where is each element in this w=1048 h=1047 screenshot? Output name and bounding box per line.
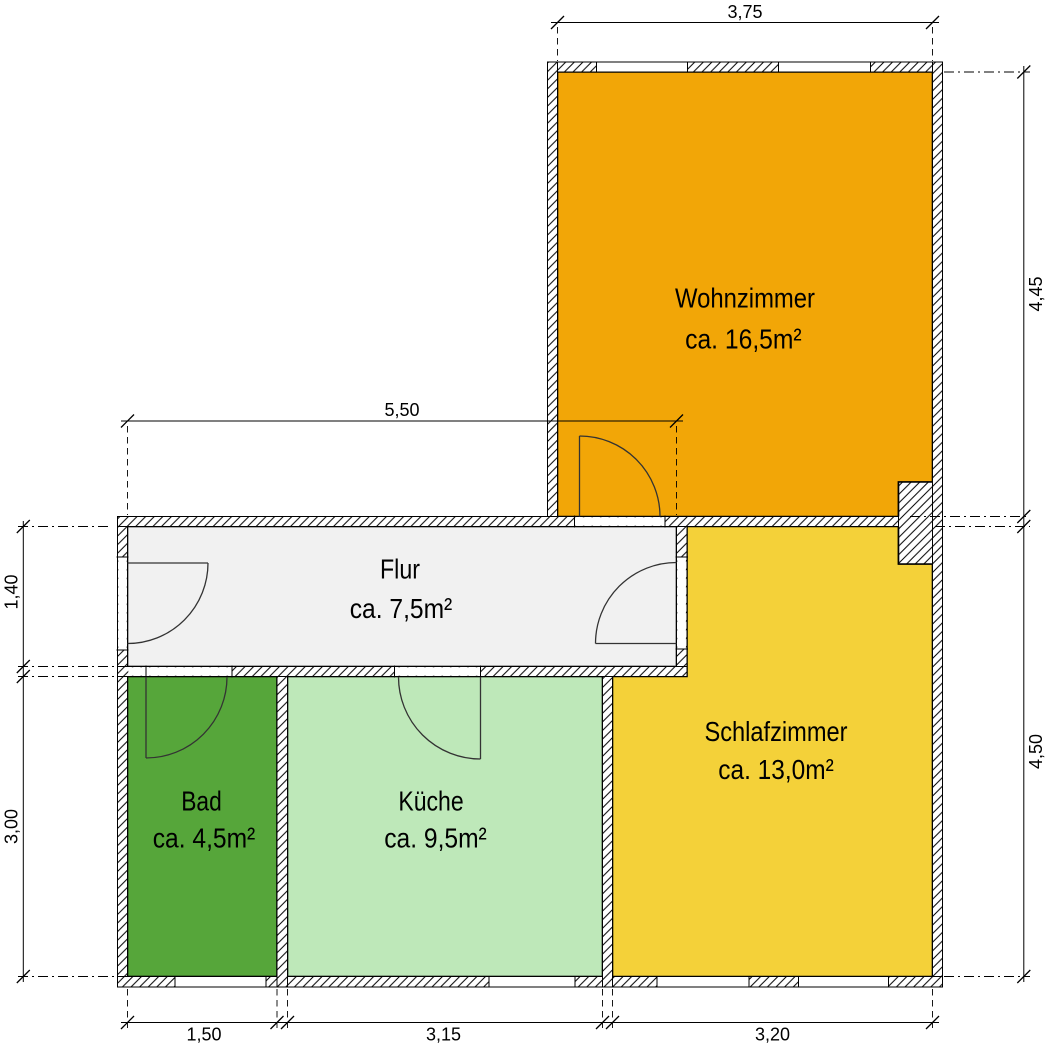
svg-text:Flur: Flur	[380, 554, 420, 585]
svg-text:ca. 4,5m²: ca. 4,5m²	[153, 823, 256, 854]
svg-text:ca. 9,5m²: ca. 9,5m²	[384, 823, 487, 854]
svg-text:5,50: 5,50	[384, 400, 419, 420]
svg-text:ca. 13,0m²: ca. 13,0m²	[718, 754, 834, 785]
svg-text:4,45: 4,45	[1026, 276, 1046, 311]
svg-text:4,50: 4,50	[1026, 734, 1046, 769]
svg-text:3,20: 3,20	[755, 1025, 790, 1045]
svg-text:ca. 7,5m²: ca. 7,5m²	[350, 593, 453, 624]
svg-text:1,50: 1,50	[186, 1025, 221, 1045]
svg-text:ca. 16,5m²: ca. 16,5m²	[685, 324, 802, 355]
svg-text:3,00: 3,00	[1, 809, 21, 844]
svg-text:Küche: Küche	[398, 786, 463, 817]
svg-text:1,40: 1,40	[1, 574, 21, 609]
svg-text:3,75: 3,75	[727, 2, 762, 22]
svg-text:3,15: 3,15	[426, 1025, 461, 1045]
svg-text:Schlafzimmer: Schlafzimmer	[705, 716, 848, 747]
svg-text:Wohnzimmer: Wohnzimmer	[675, 283, 815, 314]
svg-text:Bad: Bad	[181, 786, 222, 817]
